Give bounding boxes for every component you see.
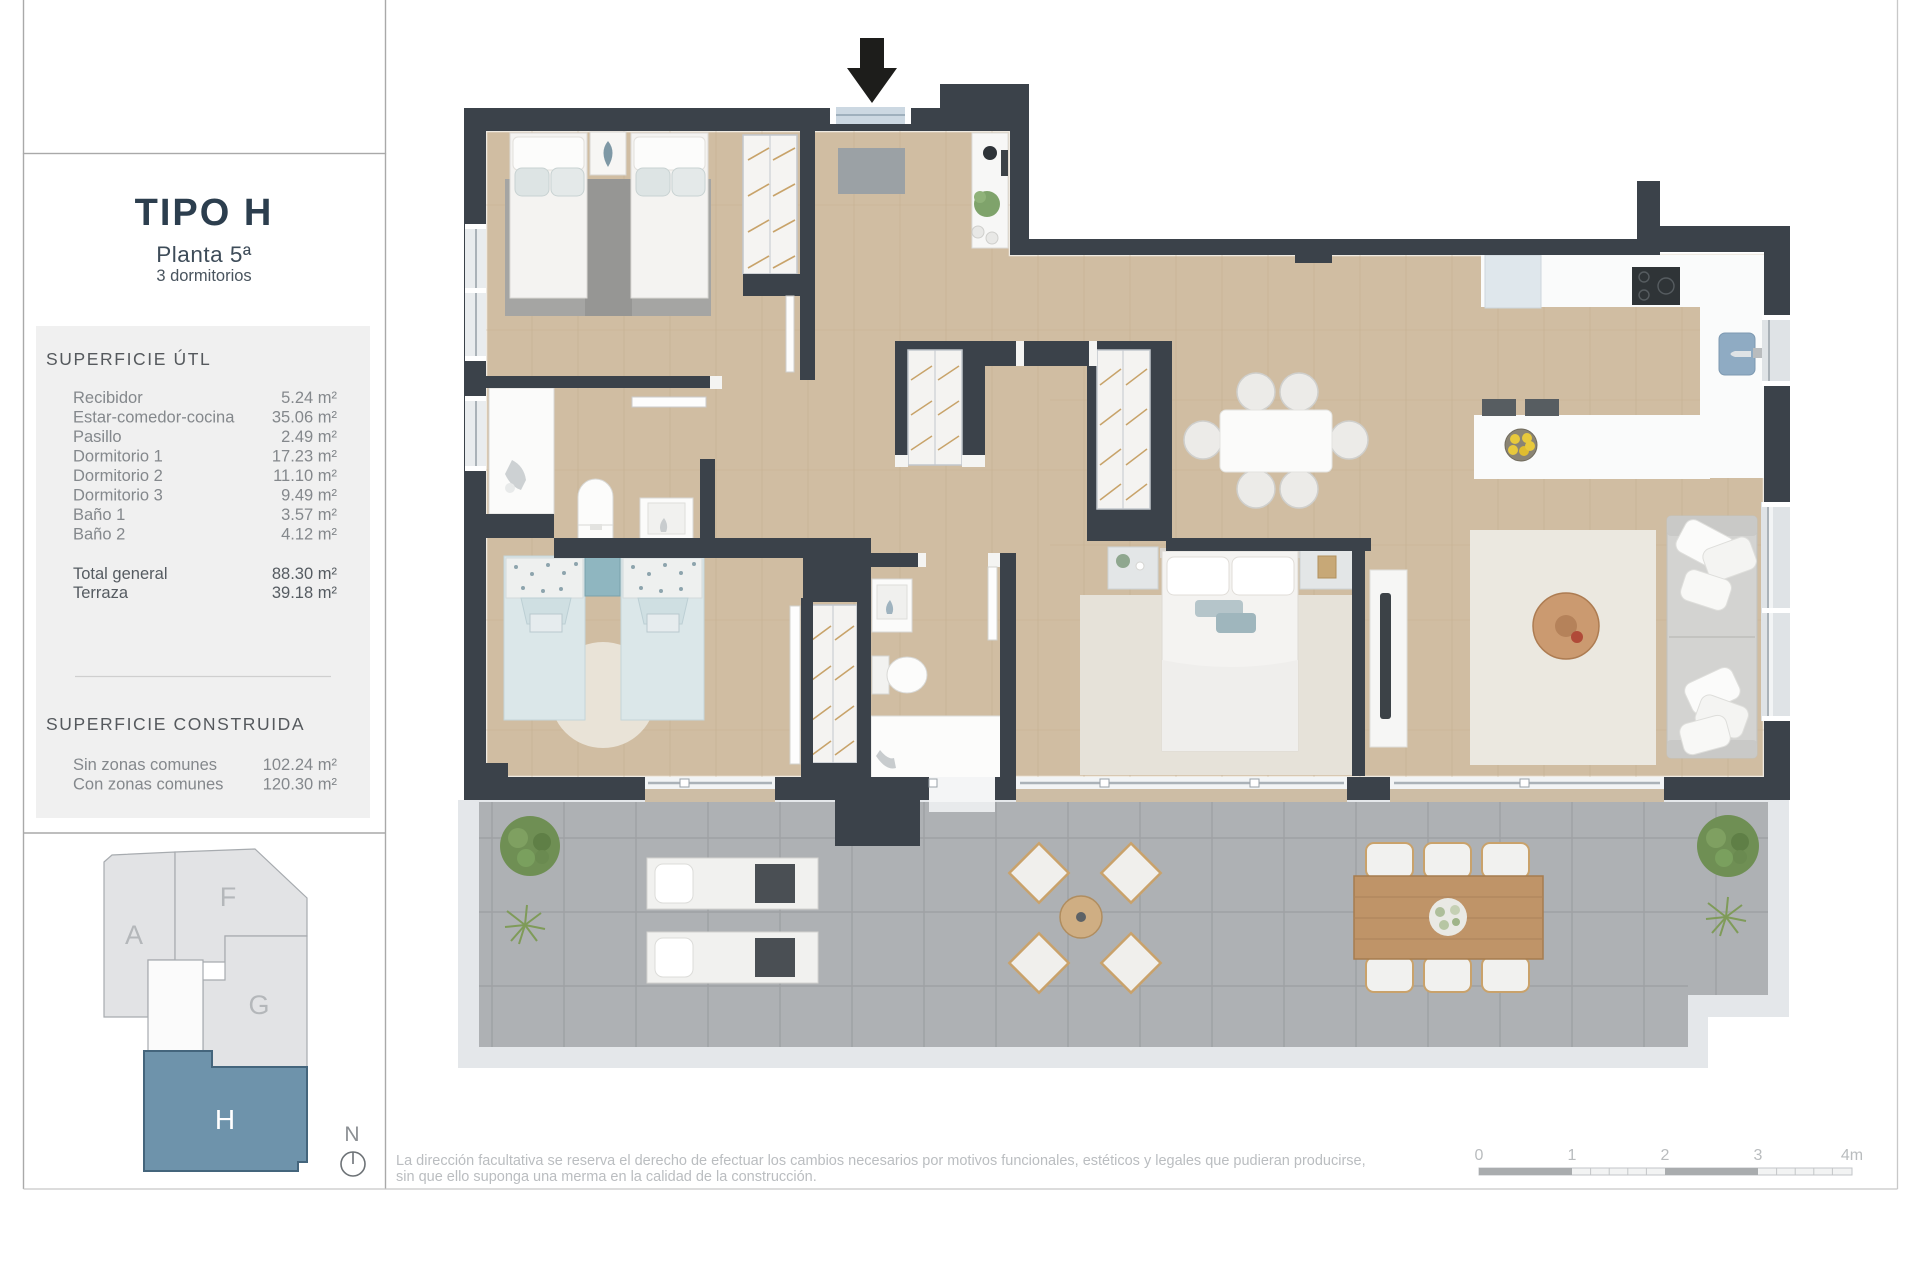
svg-text:3: 3	[1754, 1147, 1763, 1164]
svg-text:Con zonas comunes: Con zonas comunes	[73, 776, 223, 794]
svg-text:2: 2	[1661, 1147, 1670, 1164]
svg-text:Dormitorio 3: Dormitorio 3	[73, 487, 163, 505]
svg-text:35.06 m²: 35.06 m²	[272, 409, 338, 427]
svg-text:88.30 m²: 88.30 m²	[272, 565, 338, 583]
svg-text:102.24 m²: 102.24 m²	[263, 756, 338, 774]
svg-text:4.12 m²: 4.12 m²	[281, 526, 337, 544]
svg-text:3 dormitorios: 3 dormitorios	[156, 267, 251, 285]
svg-text:La dirección facultativa se re: La dirección facultativa se reserva el d…	[396, 1153, 1366, 1169]
svg-text:Terraza: Terraza	[73, 584, 129, 602]
svg-text:Estar-comedor-cocina: Estar-comedor-cocina	[73, 409, 235, 427]
svg-text:Pasillo: Pasillo	[73, 428, 122, 446]
svg-text:9.49 m²: 9.49 m²	[281, 487, 337, 505]
svg-text:3.57 m²: 3.57 m²	[281, 506, 337, 524]
svg-text:G: G	[248, 990, 269, 1020]
svg-text:5.24 m²: 5.24 m²	[281, 389, 337, 407]
svg-text:4m: 4m	[1841, 1147, 1863, 1164]
svg-text:N: N	[344, 1123, 359, 1146]
svg-text:Dormitorio 1: Dormitorio 1	[73, 448, 163, 466]
svg-text:Planta 5ª: Planta 5ª	[156, 242, 252, 267]
svg-text:17.23 m²: 17.23 m²	[272, 448, 338, 466]
svg-text:Recibidor: Recibidor	[73, 389, 143, 407]
svg-text:11.10 m²: 11.10 m²	[273, 467, 337, 485]
svg-text:F: F	[220, 882, 237, 912]
svg-text:A: A	[125, 920, 143, 950]
svg-text:Sin zonas comunes: Sin zonas comunes	[73, 756, 217, 774]
svg-text:Baño 2: Baño 2	[73, 526, 125, 544]
svg-text:sin que ello suponga una merma: sin que ello suponga una merma en la cal…	[396, 1169, 817, 1185]
svg-text:Baño 1: Baño 1	[73, 506, 125, 524]
svg-text:TIPO H: TIPO H	[135, 192, 274, 234]
svg-text:Dormitorio 2: Dormitorio 2	[73, 467, 163, 485]
svg-text:H: H	[215, 1104, 235, 1135]
svg-text:39.18 m²: 39.18 m²	[272, 584, 338, 602]
svg-text:SUPERFICIE ÚTL: SUPERFICIE ÚTL	[46, 348, 211, 369]
svg-text:2.49 m²: 2.49 m²	[281, 428, 337, 446]
svg-text:0: 0	[1475, 1147, 1484, 1164]
svg-text:120.30 m²: 120.30 m²	[263, 776, 338, 794]
svg-text:Total general: Total general	[73, 565, 167, 583]
svg-text:1: 1	[1568, 1147, 1577, 1164]
svg-text:SUPERFICIE CONSTRUIDA: SUPERFICIE CONSTRUIDA	[46, 714, 305, 734]
